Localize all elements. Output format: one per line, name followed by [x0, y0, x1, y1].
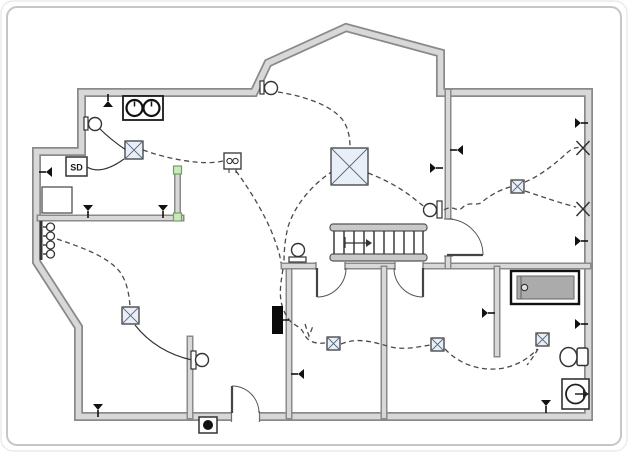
lamp-mount	[289, 257, 306, 262]
door-opening	[395, 262, 423, 271]
ceiling-light-large[interactable]	[331, 148, 368, 185]
ceiling-light[interactable]	[122, 307, 139, 324]
panel-body	[272, 306, 283, 334]
toilet-bowl	[560, 348, 577, 367]
stair-rail	[330, 224, 427, 231]
hook-knob-icon	[47, 223, 55, 231]
lamp-mount	[437, 201, 442, 218]
double-burner-appliance[interactable]	[123, 96, 163, 120]
hook-knob-icon	[47, 241, 55, 249]
ceiling-light[interactable]	[431, 338, 444, 351]
bathtub-drain-icon	[521, 284, 527, 290]
lamp-globe-icon	[89, 118, 102, 131]
lamp-globe-icon	[196, 354, 209, 367]
lamp-mount	[260, 81, 264, 94]
page-border	[7, 7, 621, 445]
wall-lamp[interactable]	[260, 81, 278, 95]
stair-rail	[330, 254, 427, 261]
toilet-tank	[577, 348, 588, 366]
door-opening	[232, 412, 260, 422]
selection-handle[interactable]	[174, 166, 182, 174]
selection-handle[interactable]	[174, 213, 182, 221]
hook-knob-icon	[47, 250, 55, 258]
lamp-mount	[84, 117, 88, 130]
ceiling-light[interactable]	[327, 337, 340, 350]
wall-lamp[interactable]	[84, 117, 102, 131]
floor-plan-canvas[interactable]: SD	[0, 0, 628, 452]
cabinet-box[interactable]	[42, 187, 72, 213]
lamp-globe-icon	[265, 82, 278, 95]
toilet[interactable]	[560, 348, 588, 367]
doorbell-button[interactable]	[199, 417, 217, 433]
ceiling-light[interactable]	[536, 333, 549, 346]
exhaust-fan[interactable]	[562, 379, 589, 409]
smoke-detector-label: SD	[70, 163, 83, 173]
ceiling-light[interactable]	[511, 180, 524, 193]
lamp-globe-icon	[292, 244, 305, 257]
door-opening	[316, 262, 345, 271]
lamp-globe-icon	[424, 204, 437, 217]
hook-knob-icon	[47, 232, 55, 240]
bathtub[interactable]	[511, 271, 579, 304]
ceiling-light[interactable]	[125, 141, 143, 159]
door-opening	[444, 219, 453, 256]
doorbell-dot-icon	[203, 420, 213, 430]
